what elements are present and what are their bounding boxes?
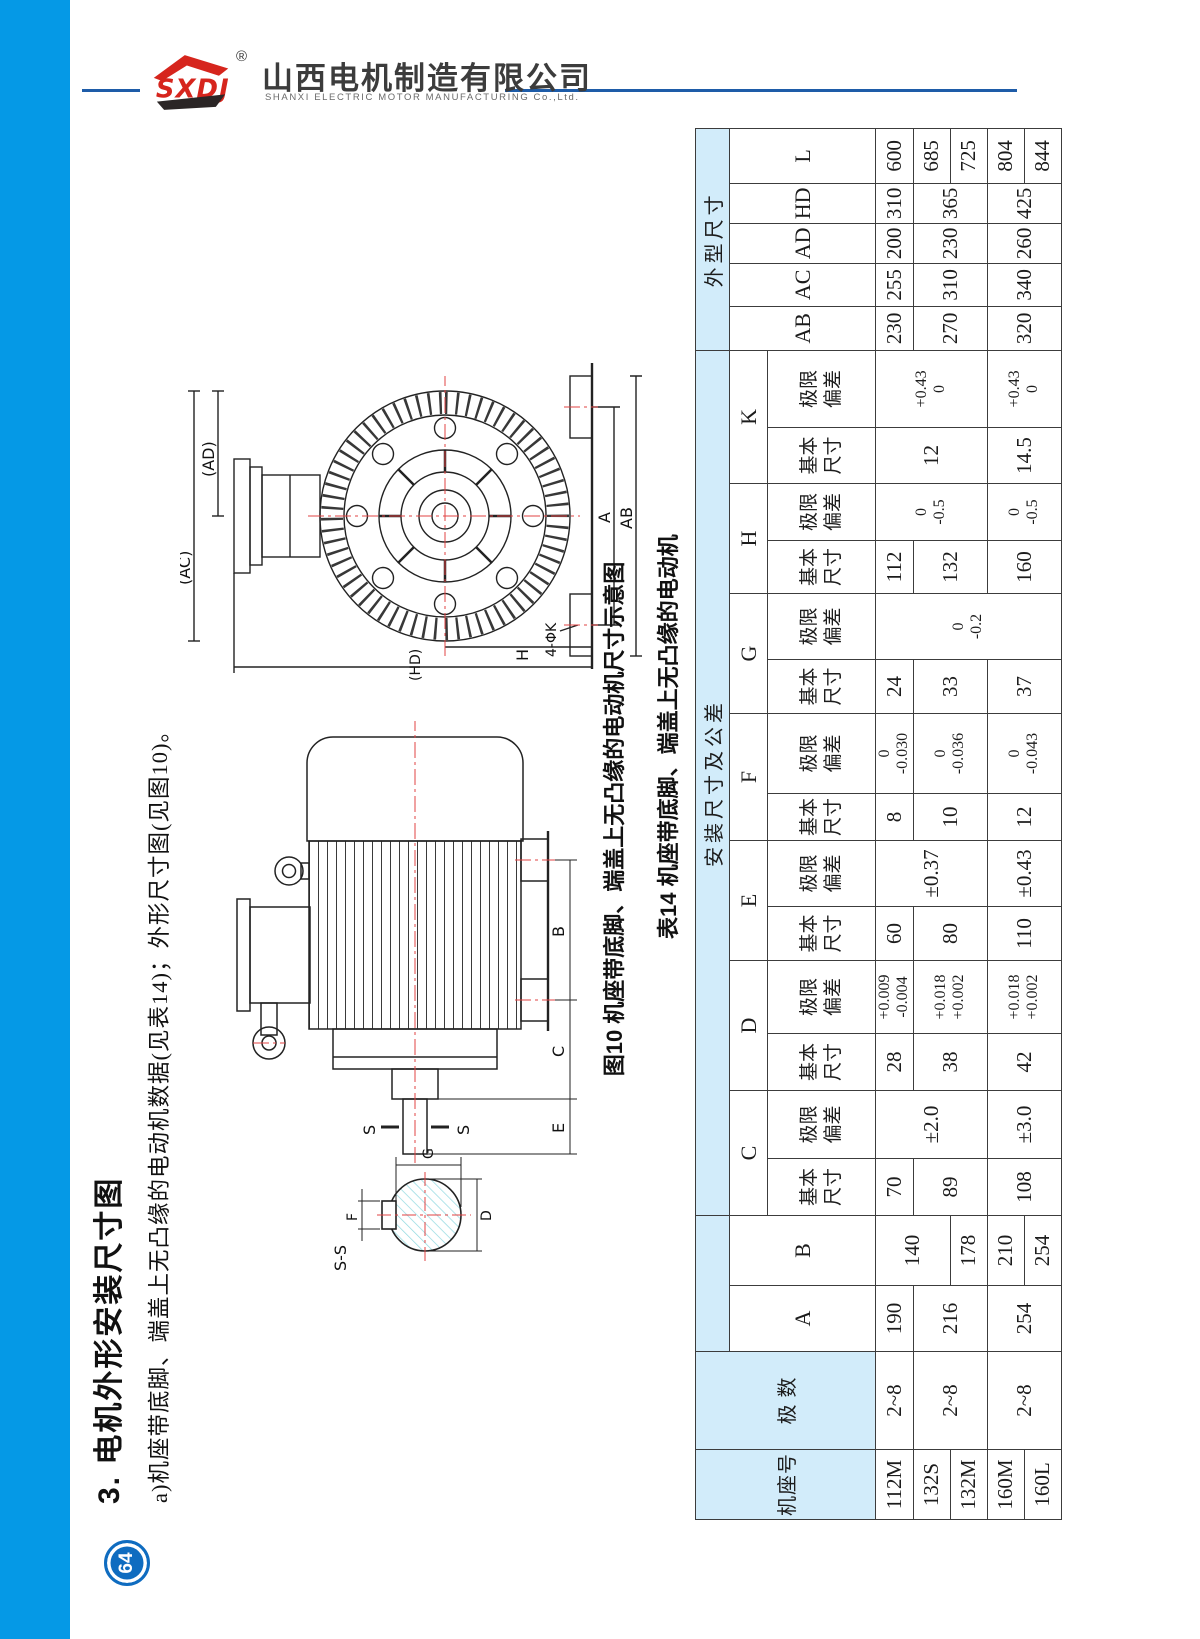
table-cell: 230 xyxy=(913,223,987,263)
table-cell: 844 xyxy=(1024,128,1061,183)
table-cell: 216 xyxy=(913,1286,987,1352)
col-header: HD xyxy=(730,183,876,223)
company-name-en: SHANXI ELECTRIC MOTOR MANUFACTURING Co.,… xyxy=(265,92,580,103)
group-header-install: 安装尺寸及公差 xyxy=(696,350,730,1215)
table-cell: 725 xyxy=(950,128,987,183)
table-cell: +0.018 +0.002 xyxy=(987,961,1061,1034)
table-cell: +0.009 -0.004 xyxy=(876,961,914,1034)
col-header: C xyxy=(730,1091,768,1216)
table-cell: 132 xyxy=(913,541,987,594)
table-cell: 310 xyxy=(876,183,914,223)
table-cell: 89 xyxy=(913,1159,987,1216)
table-cell: 190 xyxy=(876,1286,914,1352)
table-cell: 108 xyxy=(987,1159,1061,1216)
table-caption: 表14 机座带底脚、端盖上无凸缘的电动机 xyxy=(651,534,683,939)
table-cell: 270 xyxy=(913,306,987,350)
table-cell: 2~8 xyxy=(987,1352,1061,1450)
table-cell: 425 xyxy=(987,183,1061,223)
table-cell: 110 xyxy=(987,907,1061,961)
company-logo: SXDJ xyxy=(150,52,232,112)
col-header: K xyxy=(730,350,768,483)
sub-header: 极限偏差 xyxy=(768,714,876,794)
sub-header: 极限偏差 xyxy=(768,350,876,427)
col-header-poles: 极 数 xyxy=(696,1352,876,1450)
table-cell: 0 -0.5 xyxy=(876,484,988,541)
table-cell: 112M xyxy=(876,1450,914,1520)
sub-header: 基本尺寸 xyxy=(768,541,876,594)
table-cell: 140 xyxy=(876,1216,951,1286)
dim-label-4phik: 4-ΦK xyxy=(544,622,560,657)
table-cell: 60 xyxy=(876,907,914,961)
sub-header: 极限偏差 xyxy=(768,961,876,1034)
table-cell: 38 xyxy=(913,1034,987,1091)
sub-header: 基本尺寸 xyxy=(768,660,876,714)
table-cell: 160L xyxy=(1024,1450,1061,1520)
figure-caption: 图10 机座带底脚、端盖上无凸缘的电动机尺寸示意图 xyxy=(597,519,629,1119)
dim-label-c: C xyxy=(549,1046,568,1057)
table-cell: 254 xyxy=(987,1286,1061,1352)
motor-end-view-drawing: (AC) (AD) A AB H (HD) 4-ΦK xyxy=(180,359,650,681)
table-cell: 804 xyxy=(987,128,1024,183)
col-header: A xyxy=(730,1286,876,1352)
dim-label-ac: (AC) xyxy=(180,551,194,585)
section-title: 3. 电机外形安装尺寸图 xyxy=(84,1177,128,1504)
table-cell: 80 xyxy=(913,907,987,961)
col-header: D xyxy=(730,961,768,1091)
table-cell: 132S xyxy=(913,1450,950,1520)
table-cell: 2~8 xyxy=(876,1352,914,1450)
table-cell: 210 xyxy=(987,1216,1024,1286)
table-cell: 112 xyxy=(876,541,914,594)
table-cell: +0.43 0 xyxy=(876,350,988,427)
section-title-ss: S-S xyxy=(331,1245,350,1271)
sub-header: 基本尺寸 xyxy=(768,428,876,484)
table-cell: 254 xyxy=(1024,1216,1061,1286)
table-cell: 160M xyxy=(987,1450,1024,1520)
table-cell: 10 xyxy=(913,794,987,841)
sub-header: 基本尺寸 xyxy=(768,794,876,841)
table-cell: 685 xyxy=(913,128,950,183)
section-subtitle: a)机座带底脚、端盖上无凸缘的电动机数据(见表14)；外形尺寸图(见图10)。 xyxy=(142,719,174,1503)
table-cell: 24 xyxy=(876,660,914,714)
col-header: AD xyxy=(730,223,876,263)
table-cell: 160 xyxy=(987,541,1061,594)
dim-label-g: G xyxy=(421,1148,437,1159)
col-header: H xyxy=(730,484,768,594)
dim-label-b: B xyxy=(549,926,568,937)
col-header: F xyxy=(730,714,768,841)
dim-label-f: F xyxy=(345,1213,361,1221)
table-cell: 365 xyxy=(913,183,987,223)
table-cell: 255 xyxy=(876,263,914,306)
table-cell: ±2.0 xyxy=(876,1091,988,1159)
col-header: AC xyxy=(730,263,876,306)
table-cell: 28 xyxy=(876,1034,914,1091)
table-cell: 230 xyxy=(876,306,914,350)
col-header-frame: 机座号 xyxy=(696,1450,876,1520)
table-cell: 0 -0.036 xyxy=(913,714,987,794)
table-cell: 0 -0.2 xyxy=(876,594,1062,660)
table-cell: +0.43 0 xyxy=(987,350,1061,427)
table-cell: ±3.0 xyxy=(987,1091,1061,1159)
shaft-section-drawing: S-S F G D xyxy=(330,1112,495,1287)
table-cell: 178 xyxy=(950,1216,987,1286)
table-cell: 132M xyxy=(950,1450,987,1520)
header-rule-left xyxy=(82,89,140,92)
group-header-outline: 外型尺寸 xyxy=(696,128,730,350)
motor-side-view-drawing: S S E C B xyxy=(215,664,595,1169)
table-cell: 0 -0.5 xyxy=(987,484,1061,541)
col-header: L xyxy=(730,128,876,183)
col-header: E xyxy=(730,841,768,961)
sub-header: 极限偏差 xyxy=(768,484,876,541)
dim-label-h: H xyxy=(513,649,532,661)
table-cell: 42 xyxy=(987,1034,1061,1091)
col-header: AB xyxy=(730,306,876,350)
table-cell: 2~8 xyxy=(913,1352,987,1450)
table-cell: 0 -0.043 xyxy=(987,714,1061,794)
table-cell: 600 xyxy=(876,128,914,183)
dim-label-e: E xyxy=(549,1123,568,1133)
sub-header: 极限偏差 xyxy=(768,594,876,660)
table-cell: 37 xyxy=(987,660,1061,714)
page-number-badge: 64 xyxy=(104,1540,150,1586)
table-cell: +0.018 +0.002 xyxy=(913,961,987,1034)
table-cell: 320 xyxy=(987,306,1061,350)
table-cell: 12 xyxy=(876,428,988,484)
table-cell: ±0.43 xyxy=(987,841,1061,907)
table-cell: ±0.37 xyxy=(876,841,988,907)
dim-label-ad: (AD) xyxy=(199,441,218,477)
sub-header: 极限偏差 xyxy=(768,841,876,907)
col-header: B xyxy=(730,1216,876,1286)
table-cell: 260 xyxy=(987,223,1061,263)
dimension-table: 机座号 极 数 安装尺寸及公差 外型尺寸 A B C D E F G H K A… xyxy=(695,128,1062,1520)
sub-header: 基本尺寸 xyxy=(768,1034,876,1091)
rotated-content: 64 3. 电机外形安装尺寸图 a)机座带底脚、端盖上无凸缘的电动机数据(见表1… xyxy=(0,0,1200,1639)
registered-mark: ® xyxy=(236,48,247,65)
table-cell: 200 xyxy=(876,223,914,263)
table-cell: 310 xyxy=(913,263,987,306)
table-cell: 8 xyxy=(876,794,914,841)
header-spacer xyxy=(696,1216,730,1352)
dim-label-d: D xyxy=(479,1210,495,1221)
table-cell: 14.5 xyxy=(987,428,1061,484)
sub-header: 基本尺寸 xyxy=(768,907,876,961)
table-cell: 340 xyxy=(987,263,1061,306)
sub-header: 极限偏差 xyxy=(768,1091,876,1159)
col-header: G xyxy=(730,594,768,714)
table-cell: 12 xyxy=(987,794,1061,841)
sub-header: 基本尺寸 xyxy=(768,1159,876,1216)
table-cell: 70 xyxy=(876,1159,914,1216)
table-cell: 0 -0.030 xyxy=(876,714,914,794)
table-cell: 33 xyxy=(913,660,987,714)
catalog-page: 64 3. 电机外形安装尺寸图 a)机座带底脚、端盖上无凸缘的电动机数据(见表1… xyxy=(0,0,1200,1639)
